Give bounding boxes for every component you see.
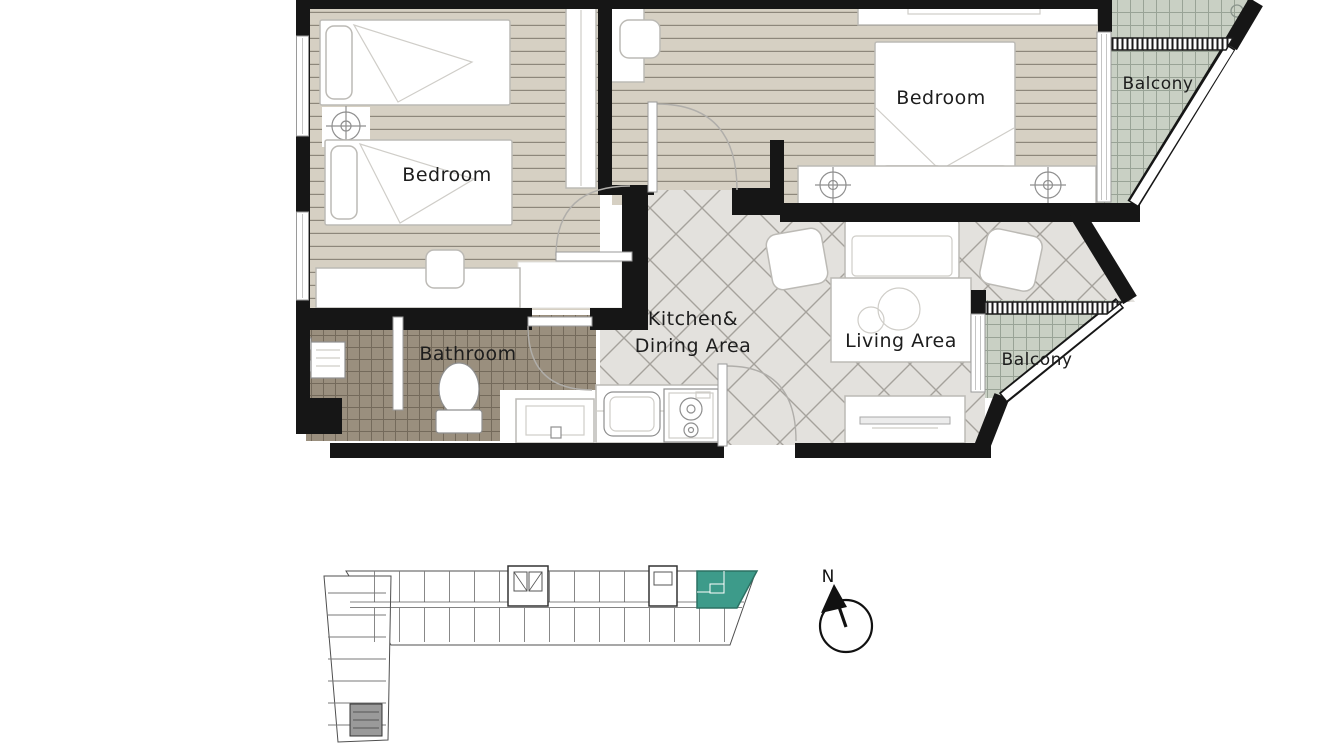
kitchen-label-line2: Dining Area — [635, 335, 752, 357]
wall-window-stub-top — [1098, 0, 1112, 32]
window-living-balcony — [971, 314, 985, 392]
wall-bottom-bathroom — [330, 443, 604, 458]
sofa — [845, 218, 959, 282]
pillow — [331, 146, 357, 219]
lounge-chair-right — [978, 227, 1044, 293]
bedroom-right-door-leaf — [648, 102, 657, 192]
dresser — [316, 268, 520, 308]
key-plan-units-bottom — [352, 608, 732, 642]
wall-left-step — [296, 398, 342, 434]
bathroom-door-leaf — [528, 317, 592, 326]
bathroom-label: Bathroom — [419, 343, 516, 365]
toilet-bowl — [439, 363, 479, 415]
key-plan-core-2 — [649, 566, 677, 606]
lounge-chair-left — [765, 227, 830, 292]
living-area-label: Living Area — [845, 330, 957, 352]
bedroom-left-door-leaf — [556, 252, 632, 261]
tv — [860, 417, 950, 424]
bedroom-right-label: Bedroom — [896, 87, 985, 109]
wall-bedroom2-corner — [732, 188, 784, 215]
shower-unit — [311, 342, 345, 378]
toilet-tank — [436, 410, 482, 433]
kitchen-label-line1: Kitchen& — [648, 308, 738, 330]
compass-arrowhead-icon — [821, 584, 847, 613]
building-key-plan — [324, 566, 757, 742]
wall-bathroom-top-a — [296, 308, 532, 330]
vestibule-floor — [518, 262, 622, 308]
wall-bedroom-divider — [598, 0, 612, 192]
window-bedroom-balcony — [1097, 32, 1111, 202]
burner-small-center — [689, 428, 694, 433]
burner-large-center — [687, 405, 695, 413]
wall-top — [296, 0, 1112, 9]
faucet — [551, 427, 561, 438]
desk-chair — [620, 20, 660, 58]
shower-partition — [393, 317, 403, 410]
wall-bottom-living — [795, 443, 991, 458]
key-plan-stairs — [350, 704, 382, 736]
bedroom-left-label: Bedroom — [402, 164, 491, 186]
floor-plan-canvas: Bedroom Bedroom Bathroom Kitchen& Dining… — [0, 0, 1342, 754]
pillow — [326, 26, 352, 99]
balcony-upper-label: Balcony — [1123, 74, 1194, 94]
floor-plan-page: Bedroom Bedroom Bathroom Kitchen& Dining… — [0, 0, 1342, 754]
entrance-door-leaf — [718, 364, 727, 446]
stool — [426, 250, 464, 288]
wall-window-stub — [971, 290, 986, 314]
balcony-divider-hatch — [1112, 38, 1233, 50]
balcony-vent-hatch — [985, 302, 1122, 314]
north-compass: N — [820, 567, 872, 652]
wall-bottom-kitchen — [594, 443, 724, 458]
north-label: N — [822, 567, 835, 587]
balcony-lower-label: Balcony — [1002, 350, 1073, 370]
key-plan-core-1 — [508, 566, 548, 606]
wall-bathroom-top-b — [590, 308, 648, 330]
